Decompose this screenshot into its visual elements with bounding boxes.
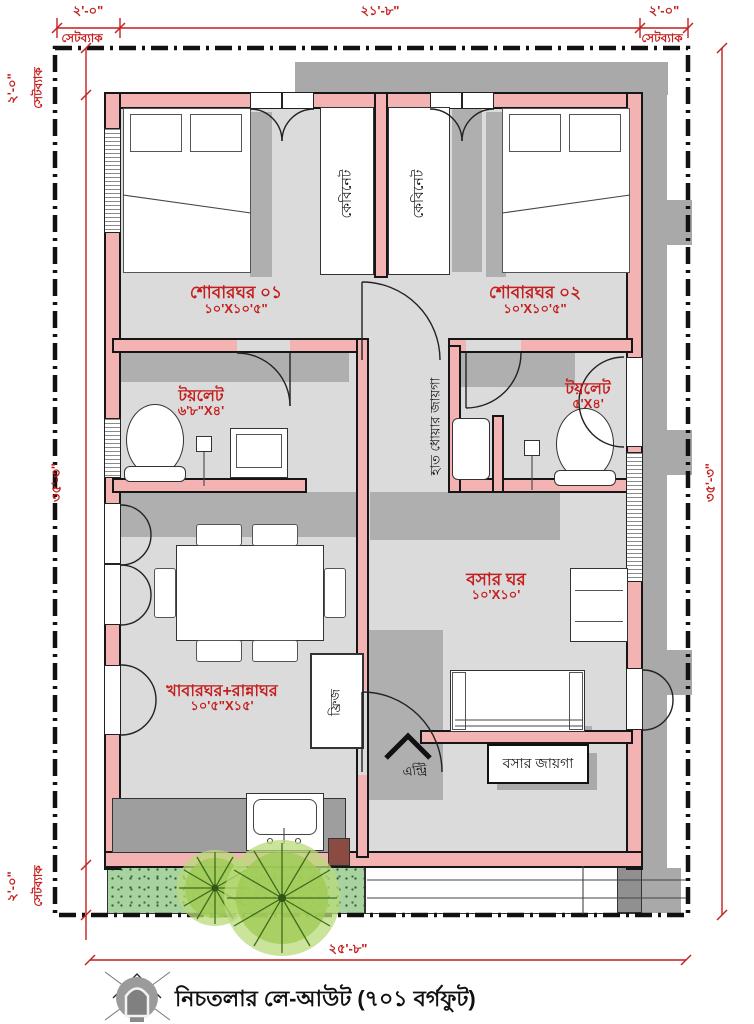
dim-setback-left-bottom: ২'-০" xyxy=(4,857,25,917)
sitting-area-box: বসার জায়গা xyxy=(487,744,589,784)
pillow xyxy=(509,114,561,152)
dining-size: ১০'৫"X১৫' xyxy=(122,697,322,718)
sofa-armrest xyxy=(569,672,583,730)
porch xyxy=(365,866,641,914)
shadow-corridor xyxy=(452,107,482,272)
chair xyxy=(196,640,242,662)
dim-bottom-width: ২৫'-৮" xyxy=(288,940,408,961)
shadow-bed1-side xyxy=(250,112,272,277)
shadow-right-notch3 xyxy=(640,650,692,695)
toilet-base-2 xyxy=(554,470,616,486)
sofa xyxy=(450,670,585,732)
door-living-right xyxy=(626,668,643,730)
shadow-living-top xyxy=(370,492,560,540)
wall-bottom xyxy=(104,851,643,868)
bedroom2-size: ১০'X১০'৫" xyxy=(435,300,635,321)
toilet1-size: ৬'৮"X৪' xyxy=(131,402,271,423)
cabinet1-label: কেবিনেট xyxy=(335,134,359,254)
shadow-toilet1-top xyxy=(119,352,349,382)
dining-table xyxy=(176,545,324,641)
wall-sofa-south xyxy=(420,730,633,744)
dim-side-right: ৩৫'-৩" xyxy=(702,443,723,523)
toilet-base-1 xyxy=(124,466,186,482)
kitchen-sink-bowl xyxy=(253,799,317,835)
chair xyxy=(324,568,346,618)
fridge-label: ফ্রিজ xyxy=(327,658,348,748)
caption-text: নিচতলার লে-আউট (৭০১ বর্গফুট) xyxy=(175,982,476,1019)
door-gap-toilet1 xyxy=(237,340,290,351)
shower-head-1 xyxy=(196,436,212,452)
pillow xyxy=(130,114,182,152)
window-living-right xyxy=(626,452,643,582)
chair xyxy=(196,524,242,546)
dim-setback-top-left: ২'-০" xyxy=(58,2,118,23)
chair xyxy=(154,568,176,618)
setback-top-left-label: সেটব্যাক xyxy=(42,30,122,50)
living-size: ১০'X১০' xyxy=(396,586,596,607)
sitting-area-label: বসার জায়গা xyxy=(503,752,574,776)
window-mullion xyxy=(104,563,121,565)
dim-setback-top-right: ২'-০" xyxy=(634,2,694,23)
grass-strip xyxy=(107,864,365,914)
vanity-1-basin xyxy=(236,434,282,468)
window-bedroom1-left xyxy=(104,128,121,233)
shadow-right-notch1 xyxy=(640,200,692,245)
handwash-label: হাত ধোয়ার জায়গা xyxy=(427,357,448,497)
pillow xyxy=(569,114,621,152)
window-dining-left-2 xyxy=(104,665,121,735)
toilet2-size: ৫'X৪' xyxy=(518,395,658,416)
shadow-bottom-corner xyxy=(641,868,681,913)
shadow-right-notch2 xyxy=(640,430,692,475)
door-gap-toilet2 xyxy=(466,340,521,351)
shower-head-2 xyxy=(524,440,540,456)
setback-left-top-label: সেটব্যাক xyxy=(30,48,50,128)
window-toilet1-left xyxy=(104,418,121,478)
counter-stub xyxy=(328,838,350,866)
pillow xyxy=(190,114,242,152)
sofa-armrest xyxy=(452,672,466,730)
chair xyxy=(252,640,298,662)
wall-closet-divider xyxy=(374,92,388,278)
setback-top-right-label: সেটব্যাক xyxy=(622,30,702,50)
dim-top-width: ২১'-৮" xyxy=(320,2,440,23)
bedroom1-size: ১০'X১০'৫" xyxy=(136,300,336,321)
setback-left-bottom-label: সেটব্যাক xyxy=(30,846,50,926)
window-mullion xyxy=(281,92,283,109)
floor-plan: বসার জায়গা শোবারঘর ০১ ১০'X১০'৫" শোবারঘর… xyxy=(0,0,754,1024)
cabinet2-label: কেবিনেট xyxy=(407,134,431,254)
compass-icon xyxy=(105,972,170,1022)
chair xyxy=(252,524,298,546)
shadow-top xyxy=(295,62,668,95)
handwash-sink xyxy=(452,418,490,480)
dim-side-left: ৩৫'-৩" xyxy=(48,443,69,523)
dim-setback-left-top: ২'-০" xyxy=(4,59,25,119)
window-mullion xyxy=(461,92,463,109)
wall-handwash-stub xyxy=(492,415,504,493)
wall-center-vertical xyxy=(356,338,369,858)
